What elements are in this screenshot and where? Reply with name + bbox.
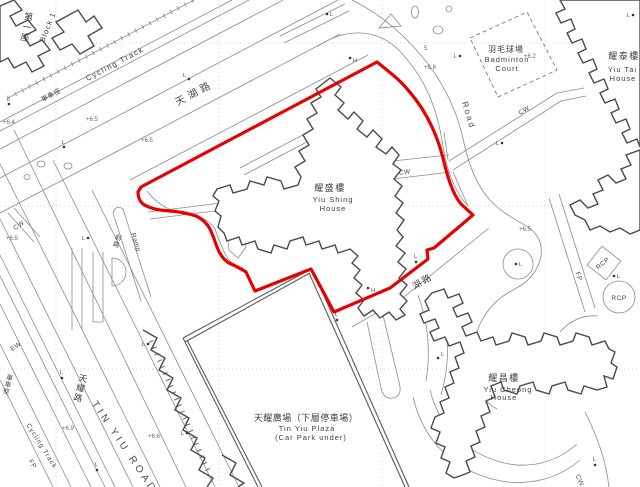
lamp-label: L bbox=[7, 97, 10, 103]
svg-text:5: 5 bbox=[424, 46, 428, 52]
building-yiu-cheong bbox=[420, 289, 617, 478]
svg-text:L: L bbox=[496, 141, 499, 147]
label-plaza-en1: Tin Yiu Plaza bbox=[279, 424, 336, 433]
svg-text:+6.5: +6.5 bbox=[86, 117, 99, 123]
svg-text:+6.6: +6.6 bbox=[148, 434, 161, 440]
spot-height: +6.4 bbox=[3, 120, 16, 126]
label-cw-4: CW bbox=[574, 474, 585, 487]
svg-text:L: L bbox=[519, 262, 522, 268]
label-wu-road: 湖路 bbox=[410, 271, 435, 292]
label-yiu-tai-en2: House bbox=[610, 74, 637, 83]
label-ramp-zh: 斜路 bbox=[110, 232, 123, 250]
label-cycling-track-zh: 單車徑 bbox=[39, 86, 62, 104]
svg-text:L: L bbox=[60, 370, 63, 376]
building-block1-wing bbox=[52, 10, 102, 54]
label-tin-wu-road: 天湖路 bbox=[173, 77, 216, 108]
label-badminton-zh: 羽毛球場 bbox=[488, 44, 524, 54]
svg-text:+6.5: +6.5 bbox=[6, 236, 19, 242]
svg-text:L: L bbox=[593, 457, 596, 463]
svg-text:L: L bbox=[95, 462, 98, 468]
label-cycling-track-zh-2: 單車徑 bbox=[1, 373, 14, 396]
label-fp-1: FP bbox=[27, 458, 38, 470]
label-badminton-en2: Court bbox=[495, 64, 518, 73]
label-rcp-2: RCP bbox=[611, 295, 626, 302]
svg-text:L: L bbox=[181, 431, 184, 437]
svg-text:L: L bbox=[441, 352, 444, 358]
label-rcp-1: RCP bbox=[595, 256, 611, 271]
label-yiu-cheong-zh: 耀昌樓 bbox=[488, 372, 520, 383]
svg-text:+6.5: +6.5 bbox=[519, 227, 532, 233]
svg-text:+6.9: +6.9 bbox=[62, 426, 75, 432]
svg-text:L: L bbox=[330, 12, 333, 18]
svg-text:L: L bbox=[335, 312, 338, 318]
label-ew: EW bbox=[9, 340, 23, 353]
map-canvas: L L L L L L L L L L L L L L L L L L H H … bbox=[0, 0, 640, 487]
label-plaza-en2: (Car Park under) bbox=[275, 433, 347, 442]
label-cw-3: CW bbox=[12, 219, 26, 232]
label-tin-yiu-road-zh: 天耀路 bbox=[72, 373, 89, 405]
svg-text:L: L bbox=[82, 236, 85, 242]
svg-text:L: L bbox=[627, 13, 630, 19]
label-yiu-tai-zh: 耀泰樓 bbox=[608, 50, 640, 61]
label-tin-yiu-road-en: TIN YIU ROAD bbox=[89, 399, 159, 487]
map-labels: 第一座 Block 1 單車徑 Cycling Track 天湖路 羽毛球場 B… bbox=[1, 10, 640, 487]
label-cw-1: CW bbox=[398, 168, 411, 177]
svg-text:L: L bbox=[454, 54, 457, 60]
building-yiu-shing bbox=[213, 78, 407, 320]
label-yiu-shing-en2: House bbox=[320, 204, 347, 213]
label-ramp-en: Ramp bbox=[129, 232, 142, 253]
label-plaza-zh: 天耀廣場（下層停車場） bbox=[254, 412, 359, 423]
svg-text:L: L bbox=[142, 342, 145, 348]
label-yiu-shing-zh: 耀盛樓 bbox=[314, 182, 346, 193]
svg-text:L: L bbox=[62, 140, 65, 146]
label-cw-2: CW bbox=[517, 105, 531, 117]
building-yiu-tai-wing bbox=[570, 150, 640, 234]
svg-text:L: L bbox=[617, 274, 620, 280]
svg-text:+6.5: +6.5 bbox=[141, 138, 154, 144]
label-road-en: Road bbox=[460, 100, 478, 130]
svg-text:L: L bbox=[414, 254, 417, 260]
label-yiu-shing-en1: Yiu Shing bbox=[313, 195, 354, 204]
hydrant-label: H bbox=[353, 58, 357, 64]
svg-text:H: H bbox=[371, 288, 375, 294]
svg-text:+6.8: +6.8 bbox=[424, 65, 437, 71]
svg-text:L: L bbox=[183, 73, 186, 79]
survey-map: L L L L L L L L L L L L L L L L L L H H … bbox=[0, 0, 640, 487]
label-yiu-tai-en1: Yiu Tai bbox=[608, 65, 637, 74]
label-badminton-en1: Badminton bbox=[485, 55, 530, 64]
label-yiu-cheong-en2: House bbox=[491, 393, 518, 402]
